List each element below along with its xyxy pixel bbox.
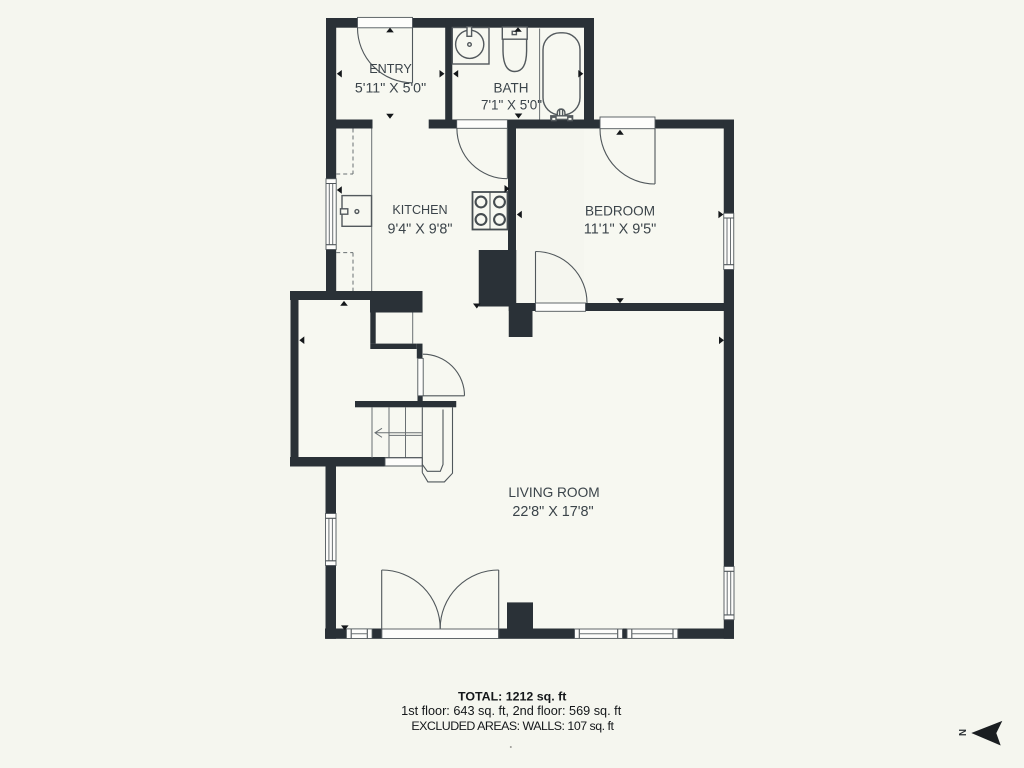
svg-text:EXCLUDED AREAS: WALLS: 107 sq.: EXCLUDED AREAS: WALLS: 107 sq. ft — [411, 719, 614, 733]
svg-text:BEDROOM: BEDROOM — [585, 203, 655, 218]
svg-text:TOTAL: 1212 sq. ft: TOTAL: 1212 sq. ft — [458, 689, 566, 703]
svg-text:LIVING ROOM: LIVING ROOM — [508, 485, 599, 500]
svg-text:22'8" X 17'8": 22'8" X 17'8" — [512, 504, 593, 520]
svg-text:ENTRY: ENTRY — [369, 62, 412, 76]
svg-text:5'11" X 5'0": 5'11" X 5'0" — [355, 81, 426, 97]
svg-text:BATH: BATH — [493, 81, 528, 96]
svg-text:9'4" X 9'8": 9'4" X 9'8" — [388, 221, 453, 237]
svg-text:1st floor: 643 sq. ft, 2nd flo: 1st floor: 643 sq. ft, 2nd floor: 569 sq… — [401, 704, 622, 718]
svg-text:7'1" X 5'0": 7'1" X 5'0" — [481, 98, 542, 113]
svg-text:N: N — [958, 729, 969, 736]
svg-text:11'1" X 9'5": 11'1" X 9'5" — [584, 221, 657, 237]
svg-text:KITCHEN: KITCHEN — [392, 203, 447, 217]
